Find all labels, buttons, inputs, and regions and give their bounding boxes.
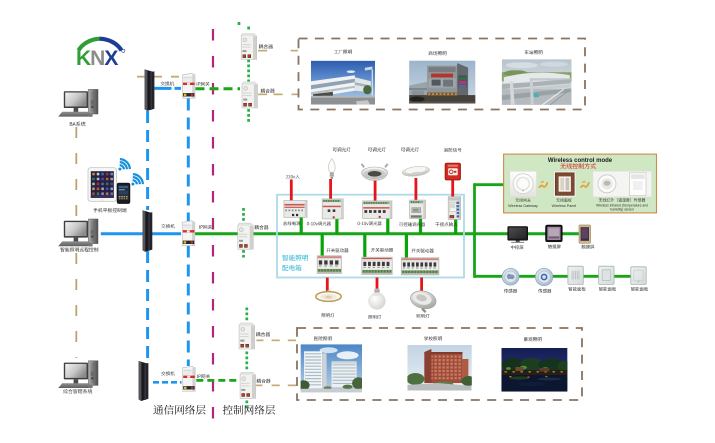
- svg-text:Wireless Panel: Wireless Panel: [552, 204, 577, 208]
- svg-text:Wireless Gateway: Wireless Gateway: [508, 204, 538, 208]
- svg-text:humidity) sensor: humidity) sensor: [610, 207, 635, 211]
- svg-text:Wireless control mode: Wireless control mode: [548, 158, 613, 164]
- svg-text:KNX: KNX: [76, 47, 118, 70]
